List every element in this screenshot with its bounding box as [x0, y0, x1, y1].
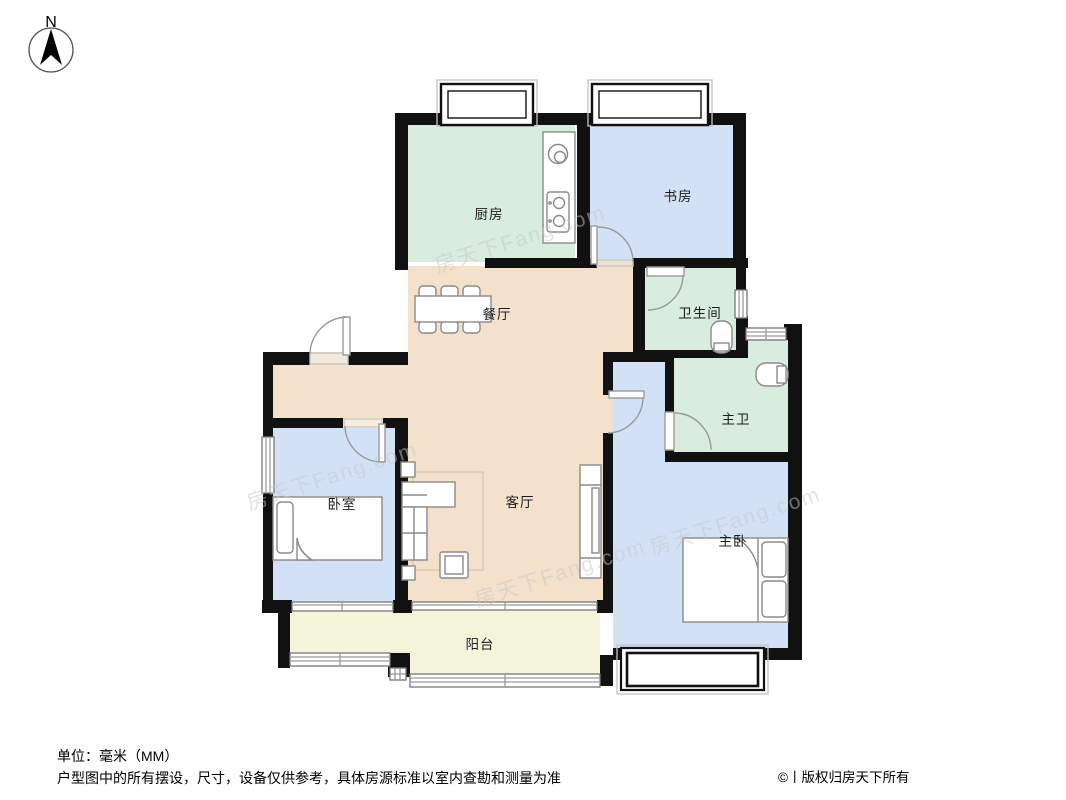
study-bay-window-icon [588, 80, 712, 126]
kitchen-bay-window-icon [437, 80, 537, 126]
master-bath-window-icon [746, 328, 786, 340]
compass: N [29, 14, 73, 72]
room-label-balcony: 阳台 [466, 633, 495, 653]
bathroom-toilet-icon [711, 321, 732, 353]
floorplan-drawing: N [0, 0, 1066, 800]
balcony-floor [290, 610, 600, 678]
bathroom-window-icon [735, 290, 747, 318]
room-label-master-bedroom: 主卧 [719, 530, 748, 550]
master-bedroom-bay-window-icon [617, 645, 768, 694]
unit-note: 单位：毫米（MM） [57, 746, 178, 766]
dining-table-icon [415, 286, 491, 333]
room-label-bedroom: 卧室 [328, 493, 357, 513]
bedroom-balcony-window-icon [292, 602, 393, 611]
compass-north-label: N [45, 14, 57, 31]
master-bath-toilet-icon [756, 363, 788, 386]
room-label-dining: 餐厅 [483, 303, 512, 323]
room-label-master-bath: 主卫 [722, 408, 751, 428]
room-label-bathroom: 卫生间 [678, 302, 722, 322]
floorplan-page: N 厨房 书房 卫生间 餐厅 客厅 卧室 主卫 主卧 阳台 房天下Fang.co… [0, 0, 1066, 800]
room-label-living: 客厅 [506, 491, 535, 511]
room-label-study: 书房 [664, 185, 693, 205]
entry-door-icon [310, 317, 350, 364]
copyright-text: ©丨版权归房天下所有 [778, 766, 909, 786]
study-floor [590, 125, 734, 262]
master-bed-icon [683, 538, 788, 622]
room-label-kitchen: 厨房 [475, 203, 504, 223]
disclaimer-text: 户型图中的所有摆设，尺寸，设备仅供参考，具体房源标准以室内查勘和测量为准 [57, 768, 561, 788]
